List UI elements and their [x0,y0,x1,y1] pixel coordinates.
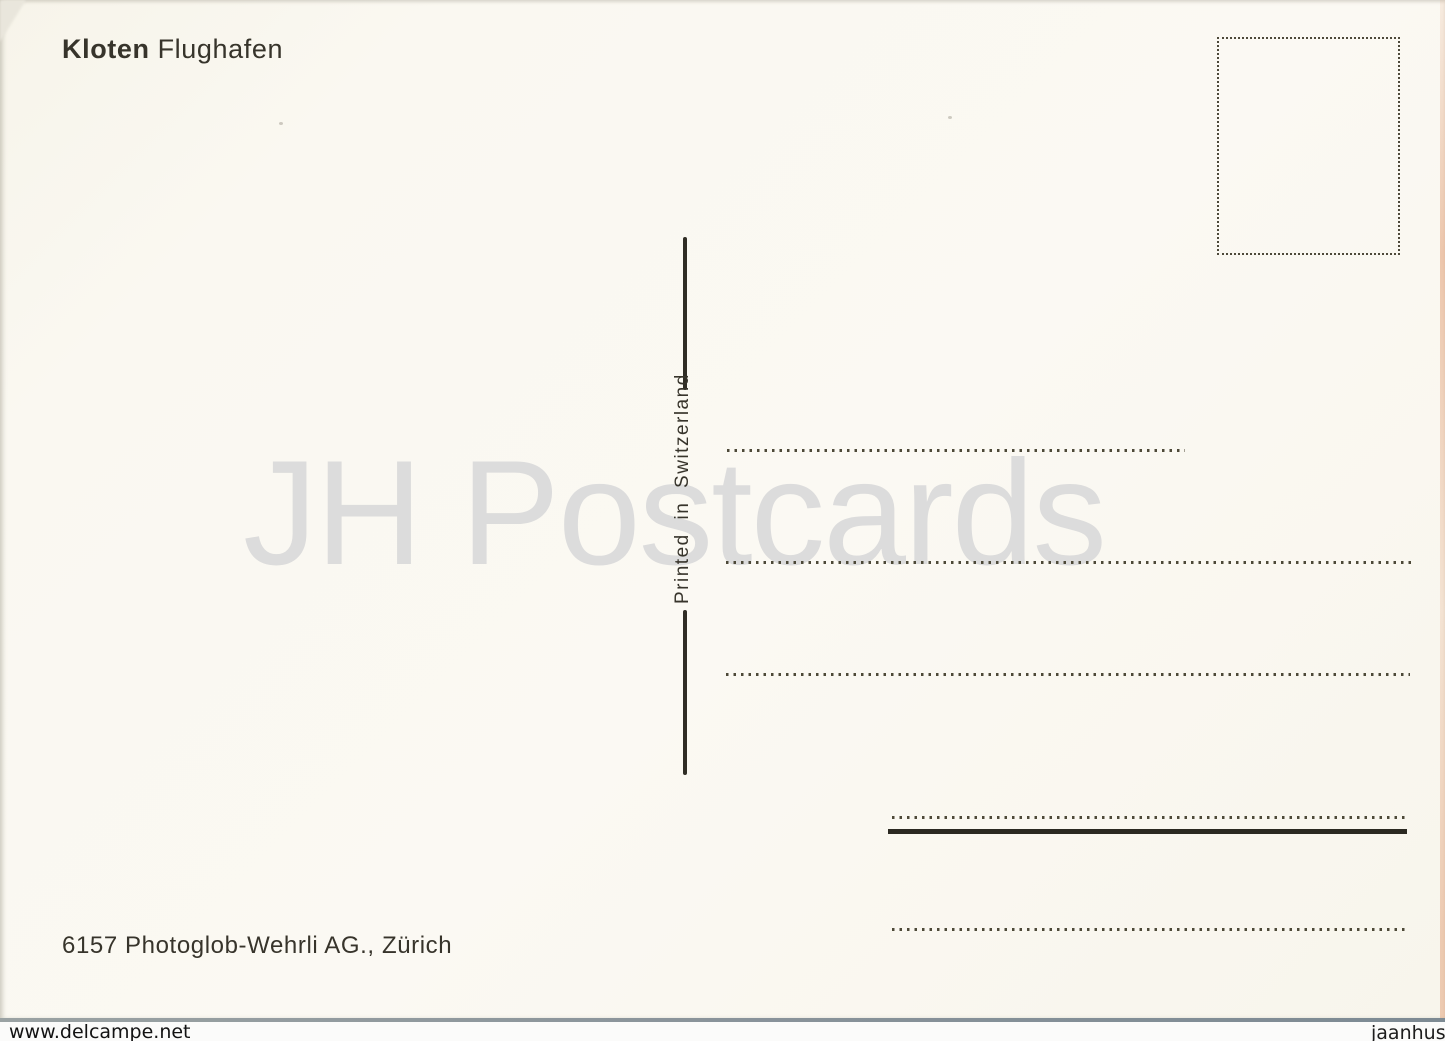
delcampe-watermark: www.delcampe.net [9,1021,191,1041]
paper-speck [279,122,283,125]
scan-edge-tint [1440,0,1445,1019]
paper-speck [948,116,952,119]
address-line-3 [726,673,1410,676]
thick-divider-line [888,829,1407,834]
address-line-1 [727,449,1185,452]
printed-in-switzerland-label: Printed in Switzerland [672,392,694,604]
scan-background-strip [0,1022,1445,1041]
postcard-scan: KlotenFlughafen Printed in Switzerland 6… [0,0,1445,1041]
address-line-5 [892,928,1405,931]
postcard-title: KlotenFlughafen [62,34,283,65]
corner-tear [0,0,26,42]
address-line-4 [892,816,1405,819]
stamp-box [1217,37,1400,255]
address-line-2 [726,561,1413,564]
publisher-imprint: 6157 Photoglob-Wehrli AG., Zürich [62,932,452,960]
postcard-back: KlotenFlughafen Printed in Switzerland 6… [0,0,1445,1019]
divider-line-top [683,237,687,390]
jaanhus-watermark: jaanhus [1371,1022,1445,1041]
postcard-title-place: Kloten [62,34,150,64]
postcard-title-subject: Flughafen [158,34,284,64]
divider-line-bottom [683,610,687,775]
